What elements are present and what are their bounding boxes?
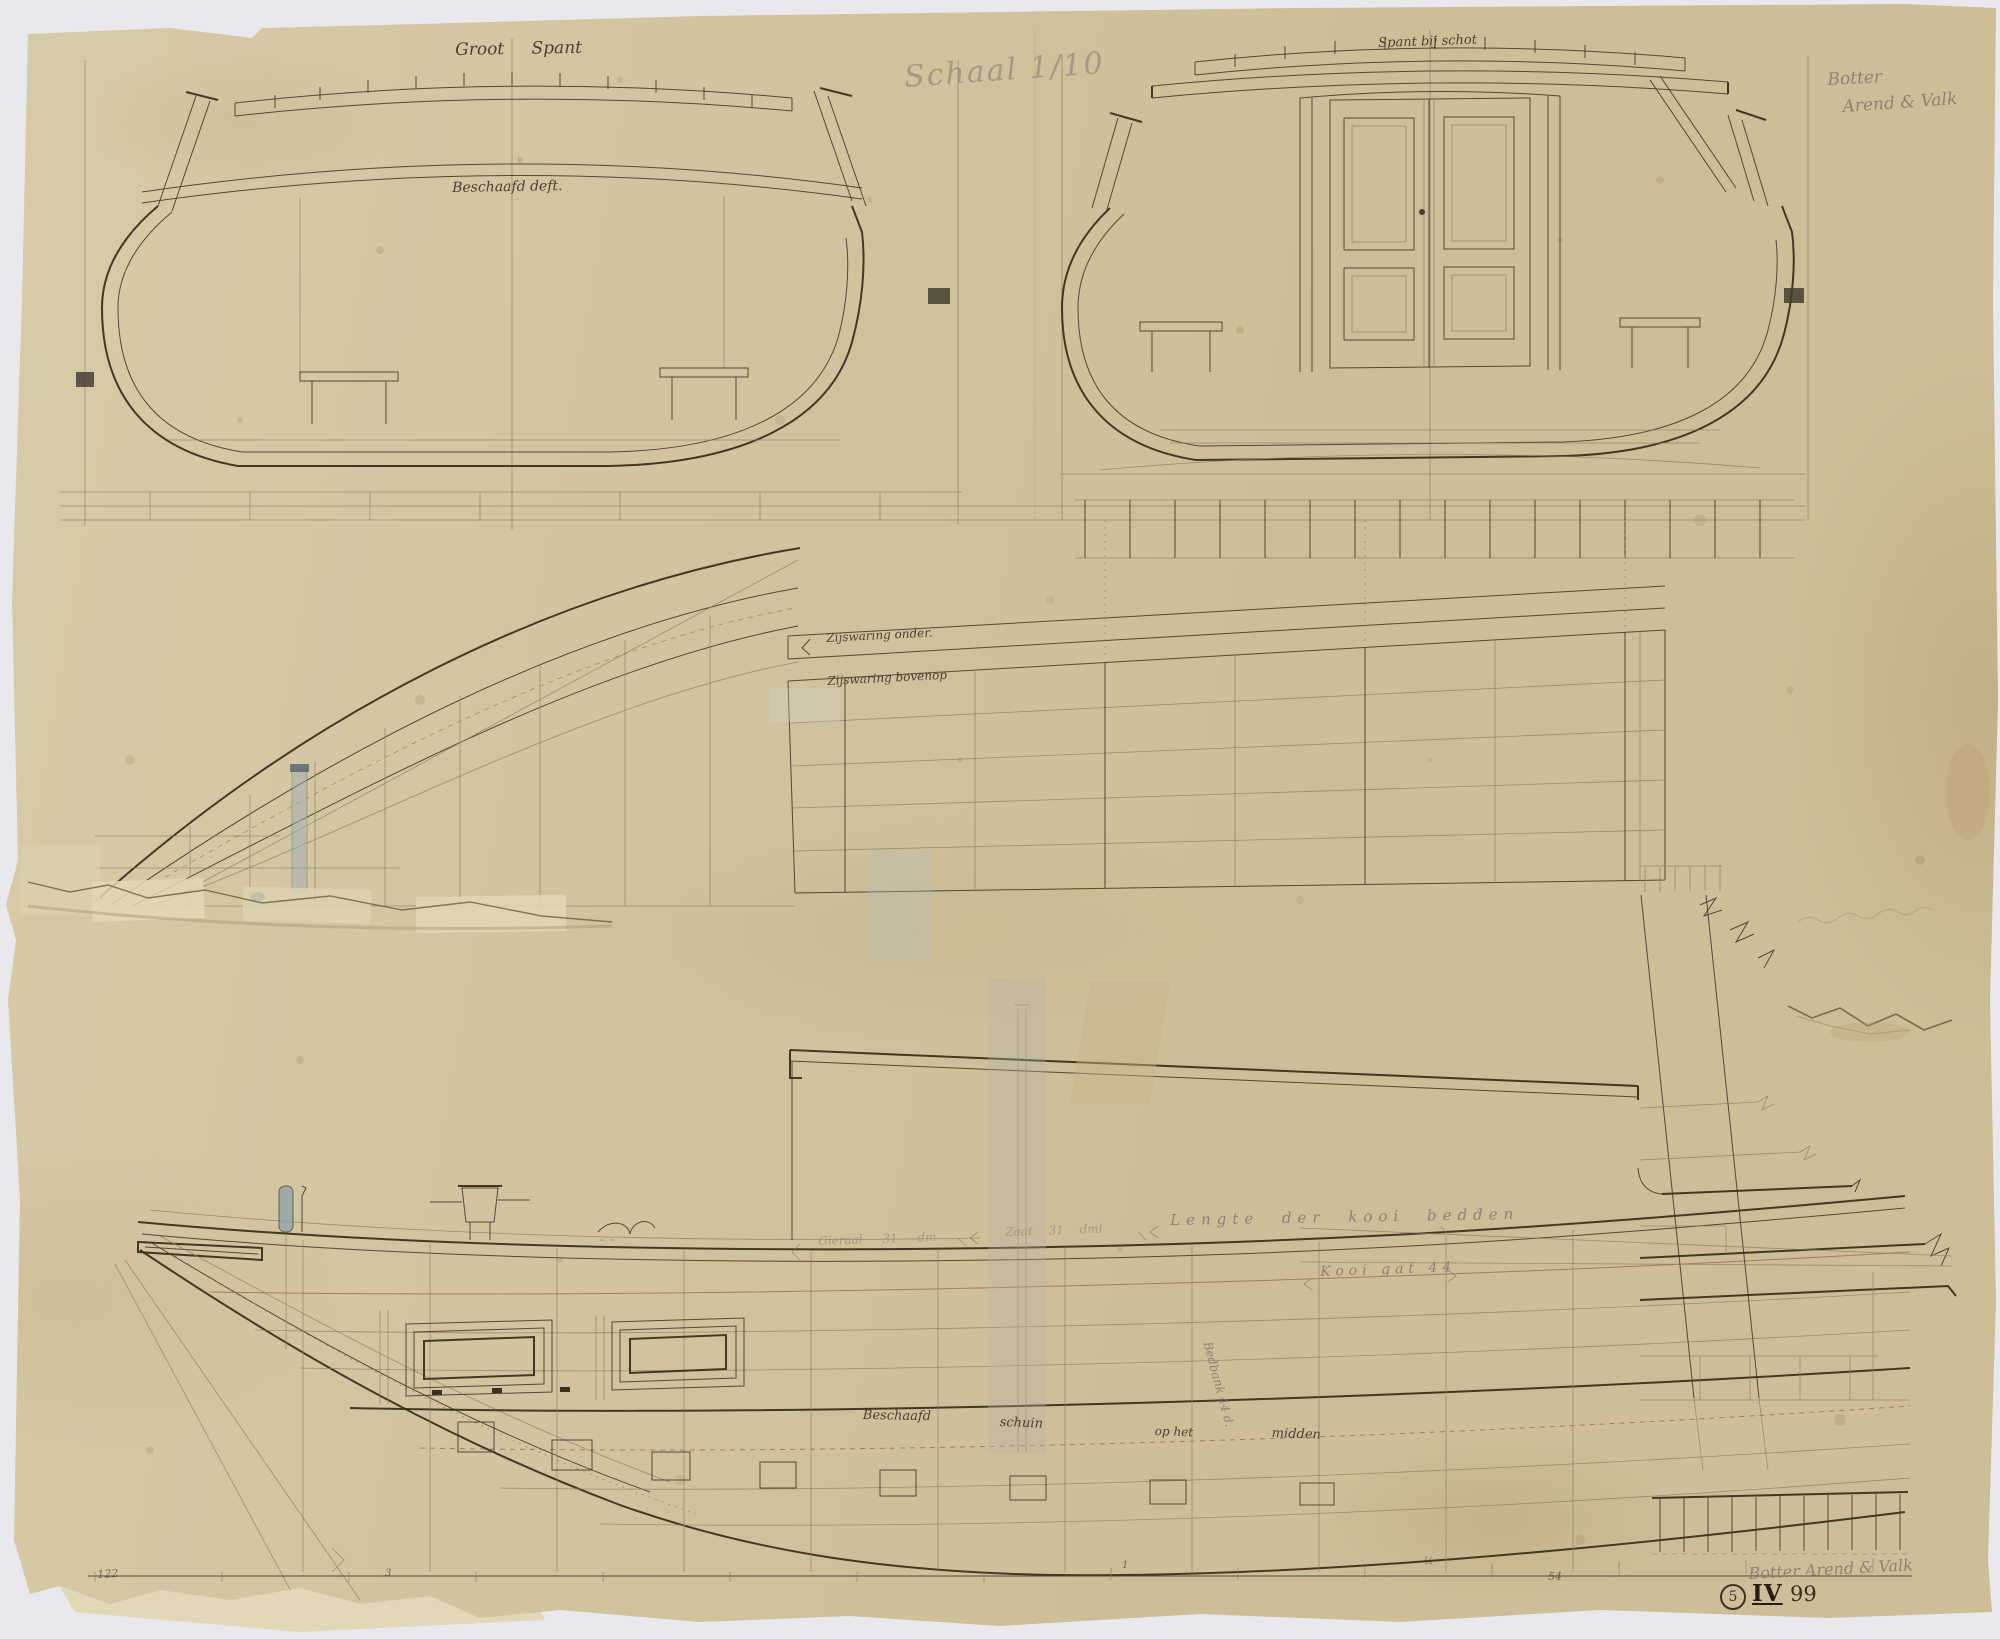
half-breadth-sheer-curves (95, 548, 800, 906)
baseline-numeral-122: 122 (97, 1567, 119, 1581)
baseline-numeral-half: ½ (1424, 1556, 1434, 1567)
section-left-title: Groot Spant (455, 38, 582, 60)
baseline-numeral-1: 1 (1122, 1560, 1128, 1571)
scanned-drawing-stage: Groot Spant Schaal 1/10 Spant bij schot … (0, 0, 2000, 1639)
ship-plan-linework (0, 0, 2000, 1639)
datum-lines (60, 30, 1808, 530)
stamp-number: 5 (1720, 1584, 1746, 1610)
stamp-year: 99 (1790, 1582, 1817, 1606)
hold-note-1: Beschaafd (863, 1408, 931, 1424)
cross-section-cabin-bulkhead (1062, 36, 1804, 558)
hold-note-2: schuin (999, 1415, 1043, 1431)
planking-expansion-grid (770, 520, 1722, 893)
hold-note-3: op het (1155, 1424, 1194, 1439)
drawing-paper-sheet: Groot Spant Schaal 1/10 Spant bij schot … (0, 0, 2000, 1639)
hold-note-4: midden (1271, 1426, 1321, 1443)
baseline-numeral-54: 54 (1548, 1570, 1562, 1583)
corner-note-line1: Botter (1827, 67, 1883, 90)
illegible-pencil-note (1798, 907, 1932, 923)
stamp-roman-numeral: IV (1752, 1580, 1783, 1607)
deck-note: Beschaafd deft. (452, 178, 563, 196)
torn-seam-and-patches (20, 845, 612, 933)
damage-and-faint-marks (1788, 744, 1990, 1042)
baseline-numeral-3: 3 (385, 1568, 391, 1579)
cross-section-midship (76, 72, 950, 466)
